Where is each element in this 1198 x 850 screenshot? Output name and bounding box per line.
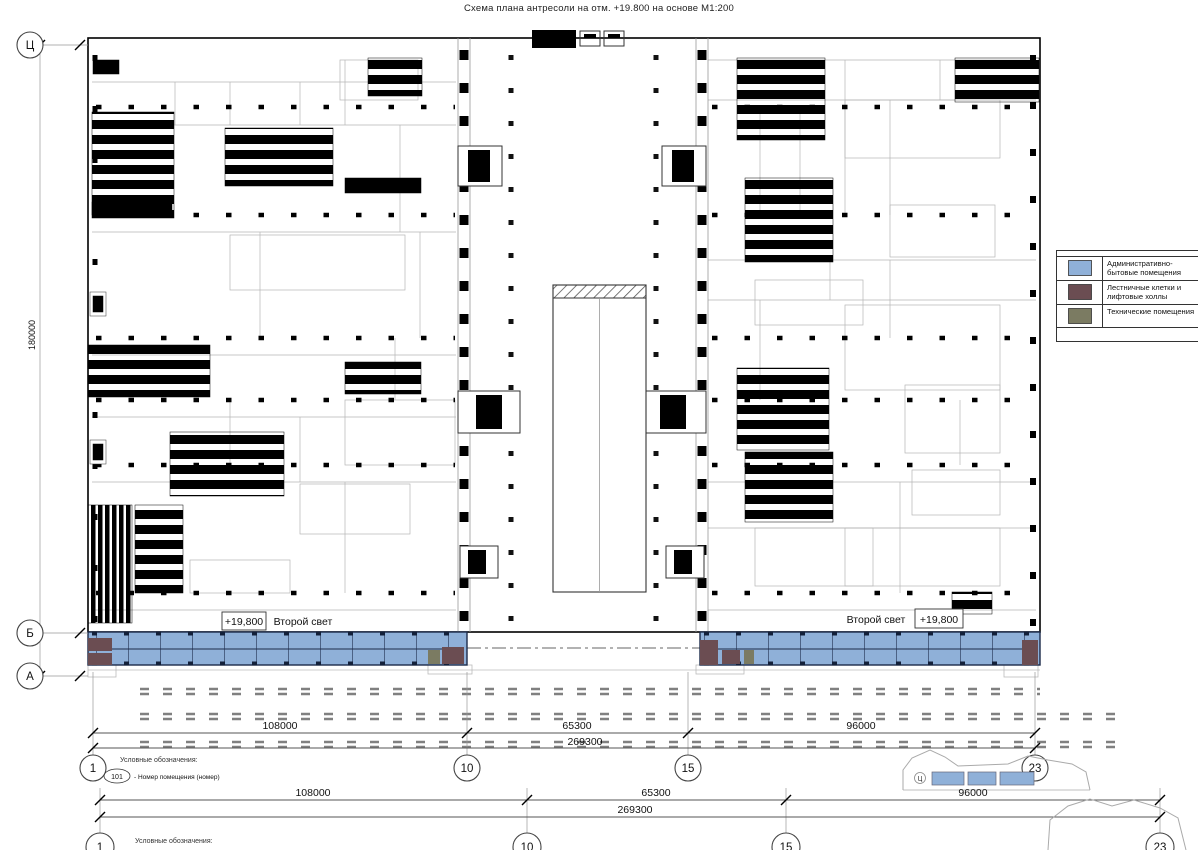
axis-row-b: Б (26, 628, 34, 640)
axis-col-23b: 23 (1154, 842, 1167, 850)
axis-row-a: А (26, 671, 34, 683)
elevation-annotations: +19,800 Второй свет Второй свет +19,800 (222, 609, 963, 630)
dim1-seg1: 108000 (262, 720, 297, 732)
dim1-seg3: 96000 (846, 720, 875, 732)
dimension-row-2: 108000 65300 96000 269300 1 10 15 23 Усл… (86, 787, 1174, 850)
key-plan-axis-label: Ц (918, 777, 923, 783)
roads (140, 689, 1128, 747)
room-tag-desc: - Номер помещения (номер) (134, 774, 220, 781)
legend-item-tech: Технические помещения (1057, 304, 1198, 327)
axis-col-1b: 1 (97, 842, 103, 850)
elevation-label-right: +19,800 (920, 614, 958, 626)
axis-col-15b: 15 (780, 842, 793, 850)
legend-item-stairs: Лестничные клетки и лифтовые холлы (1057, 280, 1198, 304)
legend-label-tech: Технические помещения (1103, 305, 1198, 327)
elevation-label-left: +19,800 (225, 616, 263, 628)
room-tag: 101 (111, 774, 123, 781)
admin-color-swatch (1057, 257, 1103, 280)
roof-elevator-block (532, 30, 624, 48)
left-axis: Ц Б А 180000 (17, 32, 88, 689)
central-shaft (553, 285, 646, 592)
legend-label-stairs: Лестничные клетки и лифтовые холлы (1103, 281, 1198, 304)
axis-col-10: 10 (461, 763, 474, 775)
dim2-seg2: 65300 (641, 787, 670, 799)
admin-strip-left (88, 632, 467, 665)
axis-col-15: 15 (682, 763, 695, 775)
second-light-label-left: Второй свет (274, 616, 333, 628)
drawing-sheet: Схема плана антресоли на отм. +19.800 на… (0, 0, 1198, 850)
notes-heading-1: Условные обозначения: (120, 756, 198, 764)
dim2-total: 269300 (617, 804, 652, 816)
axis-row-ts: Ц (26, 40, 35, 52)
legend: Административно-бытовые помещения Лестни… (1056, 250, 1198, 342)
notes-heading-2: Условные обозначения: (135, 837, 213, 845)
second-light-label-right: Второй свет (847, 614, 906, 626)
floor-plan-drawing: +19,800 Второй свет Второй свет +19,800 … (0, 0, 1198, 850)
dim2-seg1: 108000 (295, 787, 330, 799)
drawing-title: Схема плана антресоли на отм. +19.800 на… (0, 3, 1198, 14)
admin-strip-right (700, 632, 1040, 665)
dim1-seg2: 65300 (562, 720, 591, 732)
axis-col-10b: 10 (521, 842, 534, 850)
vertical-dim-label: 180000 (27, 320, 37, 350)
axis-col-1: 1 (90, 763, 96, 775)
legend-empty-row (1057, 327, 1198, 341)
stairs-color-swatch (1057, 281, 1103, 304)
key-plan-1: Ц (903, 750, 1090, 790)
tech-color-swatch (1057, 305, 1103, 327)
legend-item-admin: Административно-бытовые помещения (1057, 256, 1198, 280)
legend-label-admin: Административно-бытовые помещения (1103, 257, 1198, 280)
dim1-total: 269300 (567, 736, 602, 748)
dim2-seg3: 96000 (958, 787, 987, 799)
